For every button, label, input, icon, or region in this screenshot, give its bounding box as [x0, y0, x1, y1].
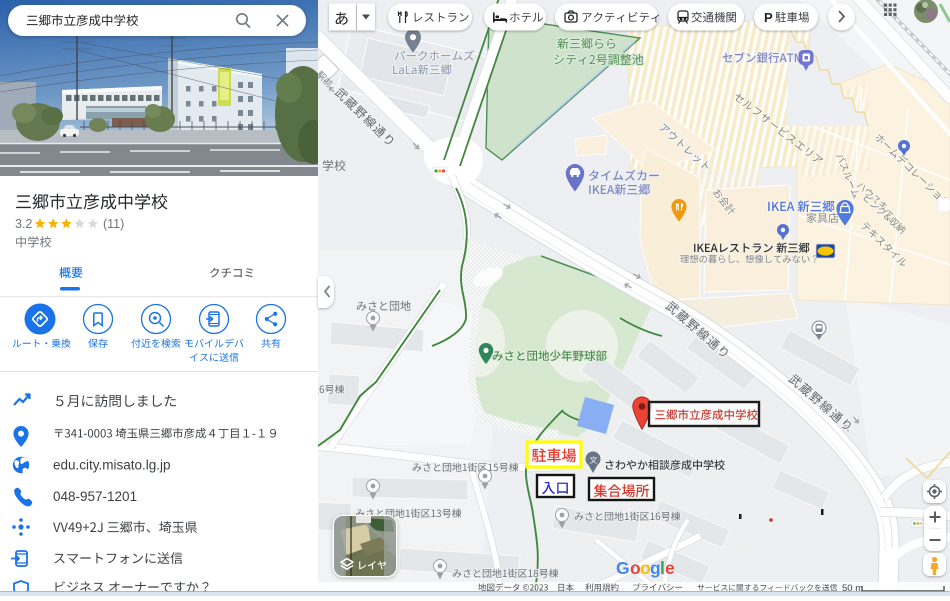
svg-text:G: G [616, 558, 630, 578]
svg-text:048-957-1201: 048-957-1201 [53, 489, 137, 504]
svg-text:P: P [764, 10, 773, 25]
svg-text:3.2: 3.2 [15, 217, 32, 231]
svg-text:(11): (11) [103, 217, 124, 231]
svg-text:edu.city.misato.lg.jp: edu.city.misato.lg.jp [53, 458, 171, 473]
svg-text:e: e [665, 558, 675, 578]
